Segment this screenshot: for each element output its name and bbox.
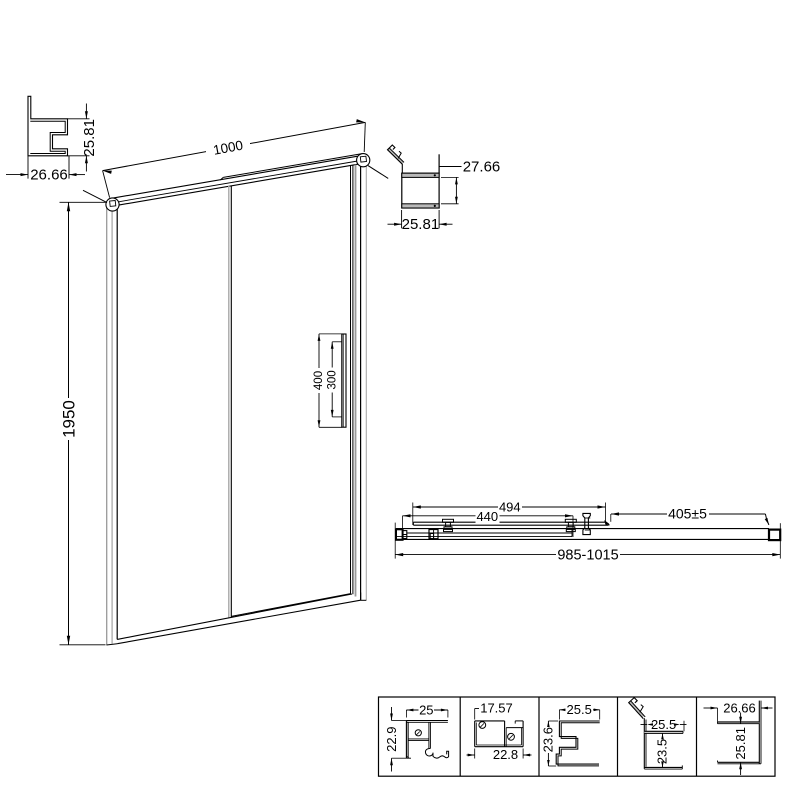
svg-text:400: 400 bbox=[313, 371, 325, 390]
svg-text:26.66: 26.66 bbox=[723, 700, 756, 715]
svg-text:25.81: 25.81 bbox=[402, 216, 440, 233]
svg-text:25.81: 25.81 bbox=[733, 727, 748, 760]
svg-text:25.81: 25.81 bbox=[81, 119, 98, 157]
svg-text:23.5: 23.5 bbox=[655, 739, 670, 764]
svg-text:440: 440 bbox=[476, 509, 498, 524]
svg-text:25.5: 25.5 bbox=[651, 717, 676, 732]
svg-text:27.66: 27.66 bbox=[463, 158, 501, 175]
svg-text:25.5: 25.5 bbox=[567, 702, 592, 717]
svg-text:17.57: 17.57 bbox=[480, 700, 513, 715]
svg-text:300: 300 bbox=[326, 370, 338, 389]
svg-text:985-1015: 985-1015 bbox=[557, 548, 618, 564]
svg-text:22.8: 22.8 bbox=[493, 747, 518, 762]
svg-text:25: 25 bbox=[419, 702, 433, 717]
svg-text:23.6: 23.6 bbox=[541, 727, 556, 752]
svg-text:405±5: 405±5 bbox=[668, 506, 707, 522]
svg-text:1950: 1950 bbox=[59, 400, 78, 438]
svg-text:494: 494 bbox=[499, 499, 521, 514]
svg-text:22.9: 22.9 bbox=[384, 727, 399, 752]
svg-text:26.66: 26.66 bbox=[30, 167, 68, 184]
